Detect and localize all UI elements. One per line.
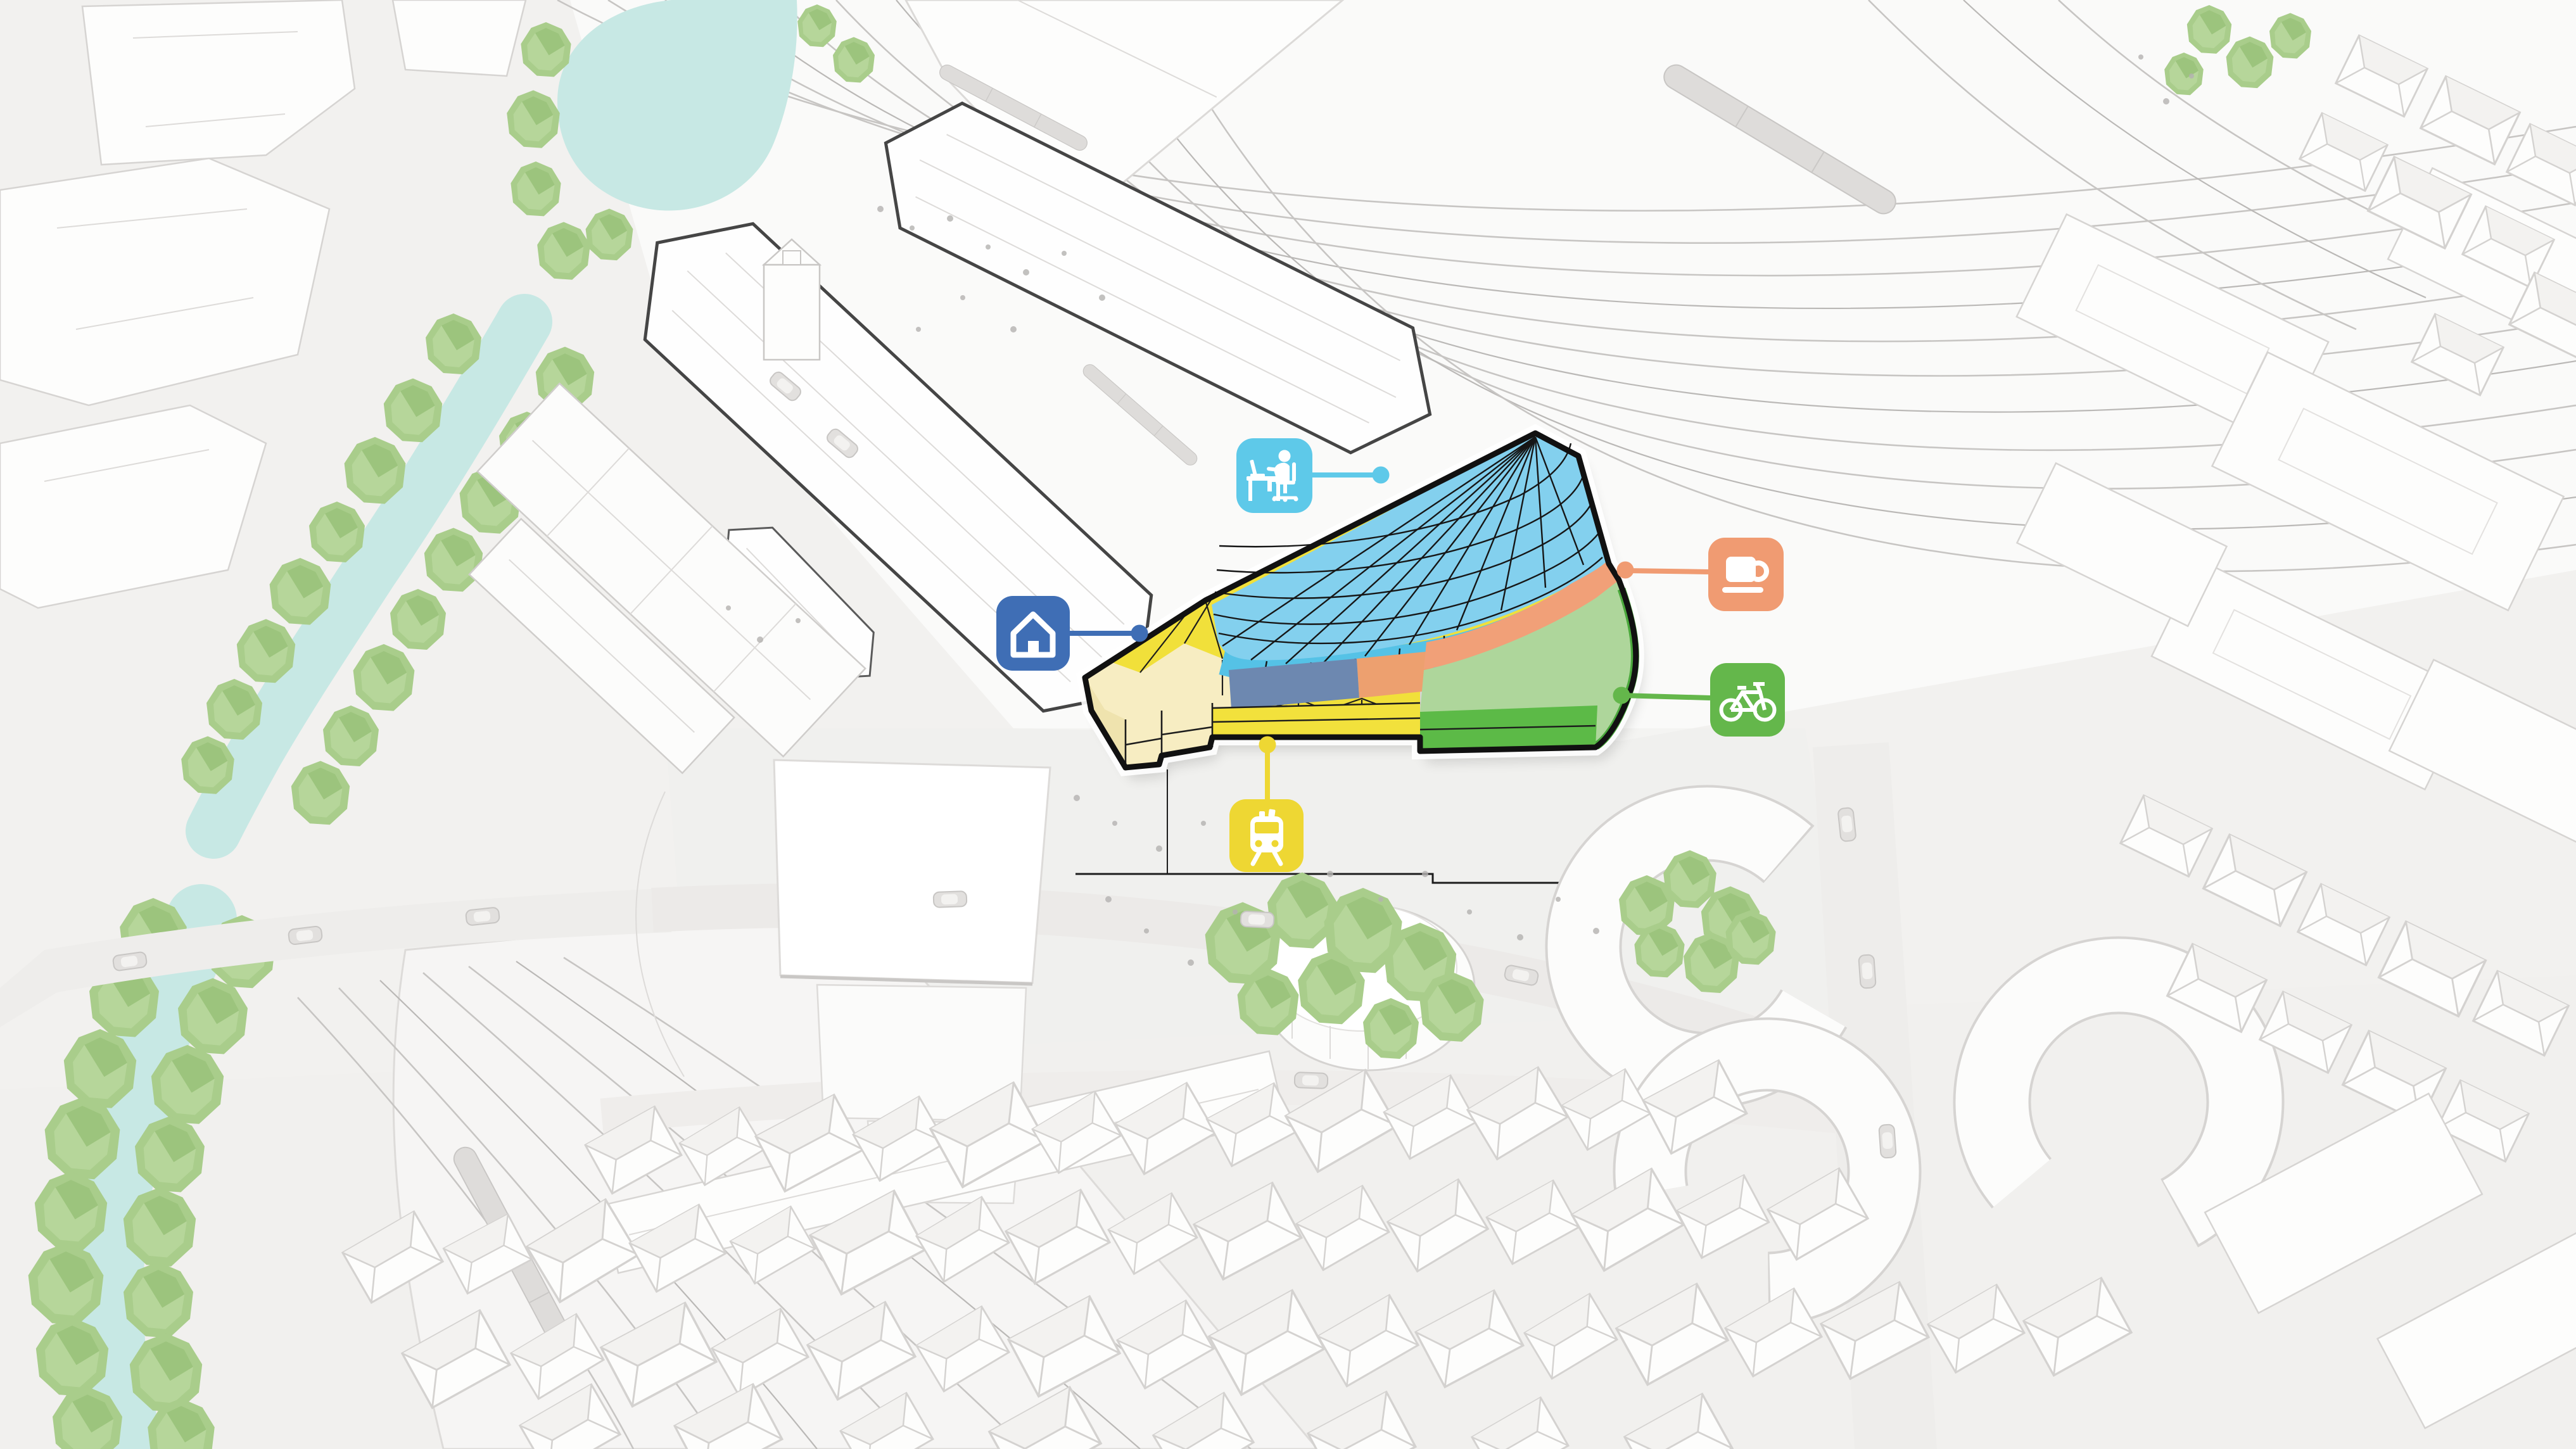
car	[1837, 807, 1856, 842]
house-door-glyph	[1028, 641, 1039, 655]
car	[1240, 911, 1274, 928]
home-callout-dot	[1131, 625, 1148, 642]
bike-callout-line	[1621, 695, 1710, 698]
rail-callout-dot	[1259, 737, 1276, 754]
coffee-cup-icon[interactable]	[1708, 538, 1784, 611]
clock-tower	[764, 239, 820, 360]
site-diagram-stage	[0, 0, 2576, 1449]
site-plan-canvas	[0, 0, 2576, 1449]
car	[934, 891, 967, 908]
bicycle-icon[interactable]	[1710, 663, 1785, 737]
car	[466, 907, 500, 925]
train-icon[interactable]	[1229, 799, 1304, 872]
plaza-slab-building	[774, 760, 1050, 983]
office-desk-icon[interactable]	[1236, 438, 1312, 513]
cafe-callout-line	[1625, 571, 1708, 572]
bike-callout-dot	[1613, 687, 1630, 704]
car	[288, 926, 323, 945]
car	[1879, 1124, 1896, 1158]
car	[1295, 1072, 1328, 1089]
car	[1858, 954, 1876, 989]
office-callout-dot	[1373, 467, 1390, 484]
house-icon[interactable]	[996, 596, 1070, 671]
cafe-callout-dot	[1617, 562, 1634, 579]
